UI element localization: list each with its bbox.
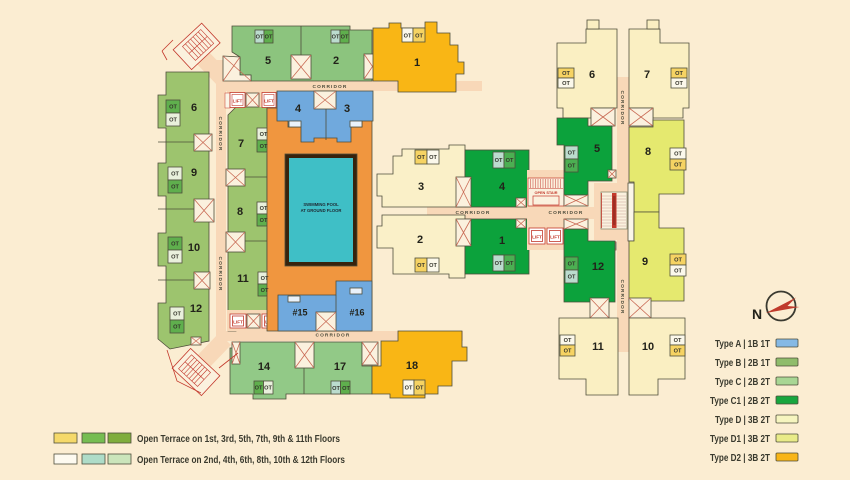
svg-text:OT: OT xyxy=(415,33,423,39)
svg-text:OT: OT xyxy=(417,155,425,161)
svg-text:OT: OT xyxy=(675,71,683,77)
svg-text:SWIMMING POOL: SWIMMING POOL xyxy=(303,202,339,207)
svg-text:OT: OT xyxy=(417,263,425,269)
svg-text:#15: #15 xyxy=(292,308,307,318)
svg-text:1: 1 xyxy=(499,235,505,247)
svg-text:OT: OT xyxy=(265,34,273,40)
svg-text:CORRIDOR: CORRIDOR xyxy=(217,117,223,152)
svg-text:OT: OT xyxy=(405,385,413,391)
svg-text:Type C | 2B 2T: Type C | 2B 2T xyxy=(715,377,770,388)
svg-text:3: 3 xyxy=(344,103,350,115)
svg-text:OT: OT xyxy=(260,218,268,224)
svg-text:CORRIDOR: CORRIDOR xyxy=(313,84,348,90)
svg-text:5: 5 xyxy=(265,55,271,67)
svg-text:OT: OT xyxy=(674,348,682,354)
svg-text:3: 3 xyxy=(418,181,424,193)
svg-text:OT: OT xyxy=(332,34,340,40)
svg-text:18: 18 xyxy=(406,360,418,372)
svg-text:OT: OT xyxy=(261,276,269,282)
svg-text:Type D1 | 3B 2T: Type D1 | 3B 2T xyxy=(710,434,770,445)
svg-text:CORRIDOR: CORRIDOR xyxy=(619,280,625,315)
svg-text:OT: OT xyxy=(506,261,514,267)
svg-text:OT: OT xyxy=(171,184,179,190)
svg-text:OT: OT xyxy=(562,71,570,77)
svg-text:OT: OT xyxy=(674,338,682,344)
svg-text:OT: OT xyxy=(256,34,264,40)
svg-text:#16: #16 xyxy=(349,308,364,318)
svg-text:Type C1 | 2B 2T: Type C1 | 2B 2T xyxy=(710,396,770,407)
svg-text:OT: OT xyxy=(341,34,349,40)
svg-text:1: 1 xyxy=(414,57,420,69)
svg-text:OT: OT xyxy=(674,162,682,168)
svg-text:OT: OT xyxy=(404,33,412,39)
svg-text:10: 10 xyxy=(642,341,654,353)
svg-text:14: 14 xyxy=(258,361,271,373)
svg-text:9: 9 xyxy=(191,167,197,179)
svg-text:OT: OT xyxy=(429,155,437,161)
svg-text:LIFT: LIFT xyxy=(550,235,560,240)
svg-text:OT: OT xyxy=(495,158,503,164)
svg-text:OT: OT xyxy=(332,386,340,392)
svg-text:Open Terrace on 1st, 3rd, 5th,: Open Terrace on 1st, 3rd, 5th, 7th, 9th … xyxy=(137,434,340,445)
svg-text:OT: OT xyxy=(169,104,177,110)
svg-text:OT: OT xyxy=(564,338,572,344)
svg-text:CORRIDOR: CORRIDOR xyxy=(316,333,351,339)
svg-text:OT: OT xyxy=(416,385,424,391)
svg-text:CORRIDOR: CORRIDOR xyxy=(456,210,491,216)
svg-text:12: 12 xyxy=(190,303,202,315)
svg-text:7: 7 xyxy=(644,69,650,81)
svg-text:CORRIDOR: CORRIDOR xyxy=(619,91,625,126)
svg-text:2: 2 xyxy=(333,55,339,67)
svg-text:6: 6 xyxy=(589,69,595,81)
svg-text:OT: OT xyxy=(171,171,179,177)
svg-text:8: 8 xyxy=(237,206,243,218)
svg-text:OT: OT xyxy=(261,288,269,294)
svg-text:Open Terrace on 2nd, 4th, 6th,: Open Terrace on 2nd, 4th, 6th, 8th, 10th… xyxy=(137,455,345,466)
svg-text:OT: OT xyxy=(495,261,503,267)
svg-text:Type B | 2B 1T: Type B | 2B 1T xyxy=(715,358,770,369)
svg-text:OPEN STAIR: OPEN STAIR xyxy=(535,191,558,195)
svg-text:11: 11 xyxy=(592,341,604,353)
svg-text:10: 10 xyxy=(188,242,200,254)
svg-text:5: 5 xyxy=(594,143,600,155)
svg-text:OT: OT xyxy=(562,81,570,87)
svg-text:Type A | 1B 1T: Type A | 1B 1T xyxy=(715,339,770,350)
svg-text:OT: OT xyxy=(568,274,576,280)
svg-text:OT: OT xyxy=(171,241,179,247)
svg-text:12: 12 xyxy=(592,261,604,273)
svg-text:7: 7 xyxy=(238,138,244,150)
svg-text:CORRIDOR: CORRIDOR xyxy=(217,257,223,292)
svg-text:CORRIDOR: CORRIDOR xyxy=(549,210,584,216)
svg-text:8: 8 xyxy=(645,146,651,158)
svg-text:4: 4 xyxy=(295,103,302,115)
svg-text:Type D | 3B 2T: Type D | 3B 2T xyxy=(715,415,770,426)
svg-text:9: 9 xyxy=(642,256,648,268)
svg-text:OT: OT xyxy=(674,268,682,274)
svg-text:OT: OT xyxy=(674,257,682,263)
svg-text:6: 6 xyxy=(191,102,197,114)
svg-text:OT: OT xyxy=(568,150,576,156)
svg-text:4: 4 xyxy=(499,181,506,193)
svg-text:OT: OT xyxy=(674,151,682,157)
svg-text:OT: OT xyxy=(260,144,268,150)
svg-text:OT: OT xyxy=(255,385,263,391)
svg-text:OT: OT xyxy=(169,117,177,123)
svg-text:OT: OT xyxy=(506,158,514,164)
svg-text:LIFT: LIFT xyxy=(233,320,243,325)
svg-text:OT: OT xyxy=(173,311,181,317)
svg-text:Type D2 | 3B 2T: Type D2 | 3B 2T xyxy=(710,453,770,464)
svg-text:OT: OT xyxy=(171,254,179,260)
svg-text:OT: OT xyxy=(568,261,576,267)
svg-text:LIFT: LIFT xyxy=(264,99,274,104)
svg-text:LIFT: LIFT xyxy=(233,99,243,104)
svg-text:OT: OT xyxy=(429,263,437,269)
svg-text:OT: OT xyxy=(342,386,350,392)
svg-text:OT: OT xyxy=(568,163,576,169)
svg-text:OT: OT xyxy=(260,206,268,212)
svg-text:2: 2 xyxy=(417,234,423,246)
svg-text:OT: OT xyxy=(564,348,572,354)
svg-text:11: 11 xyxy=(237,273,249,285)
svg-text:OT: OT xyxy=(260,132,268,138)
svg-text:LIFT: LIFT xyxy=(532,235,542,240)
svg-text:N: N xyxy=(752,306,762,322)
svg-text:OT: OT xyxy=(675,81,683,87)
svg-text:AT GROUND FLOOR: AT GROUND FLOOR xyxy=(301,208,342,213)
svg-text:OT: OT xyxy=(173,324,181,330)
svg-text:OT: OT xyxy=(264,385,272,391)
svg-text:17: 17 xyxy=(334,361,346,373)
